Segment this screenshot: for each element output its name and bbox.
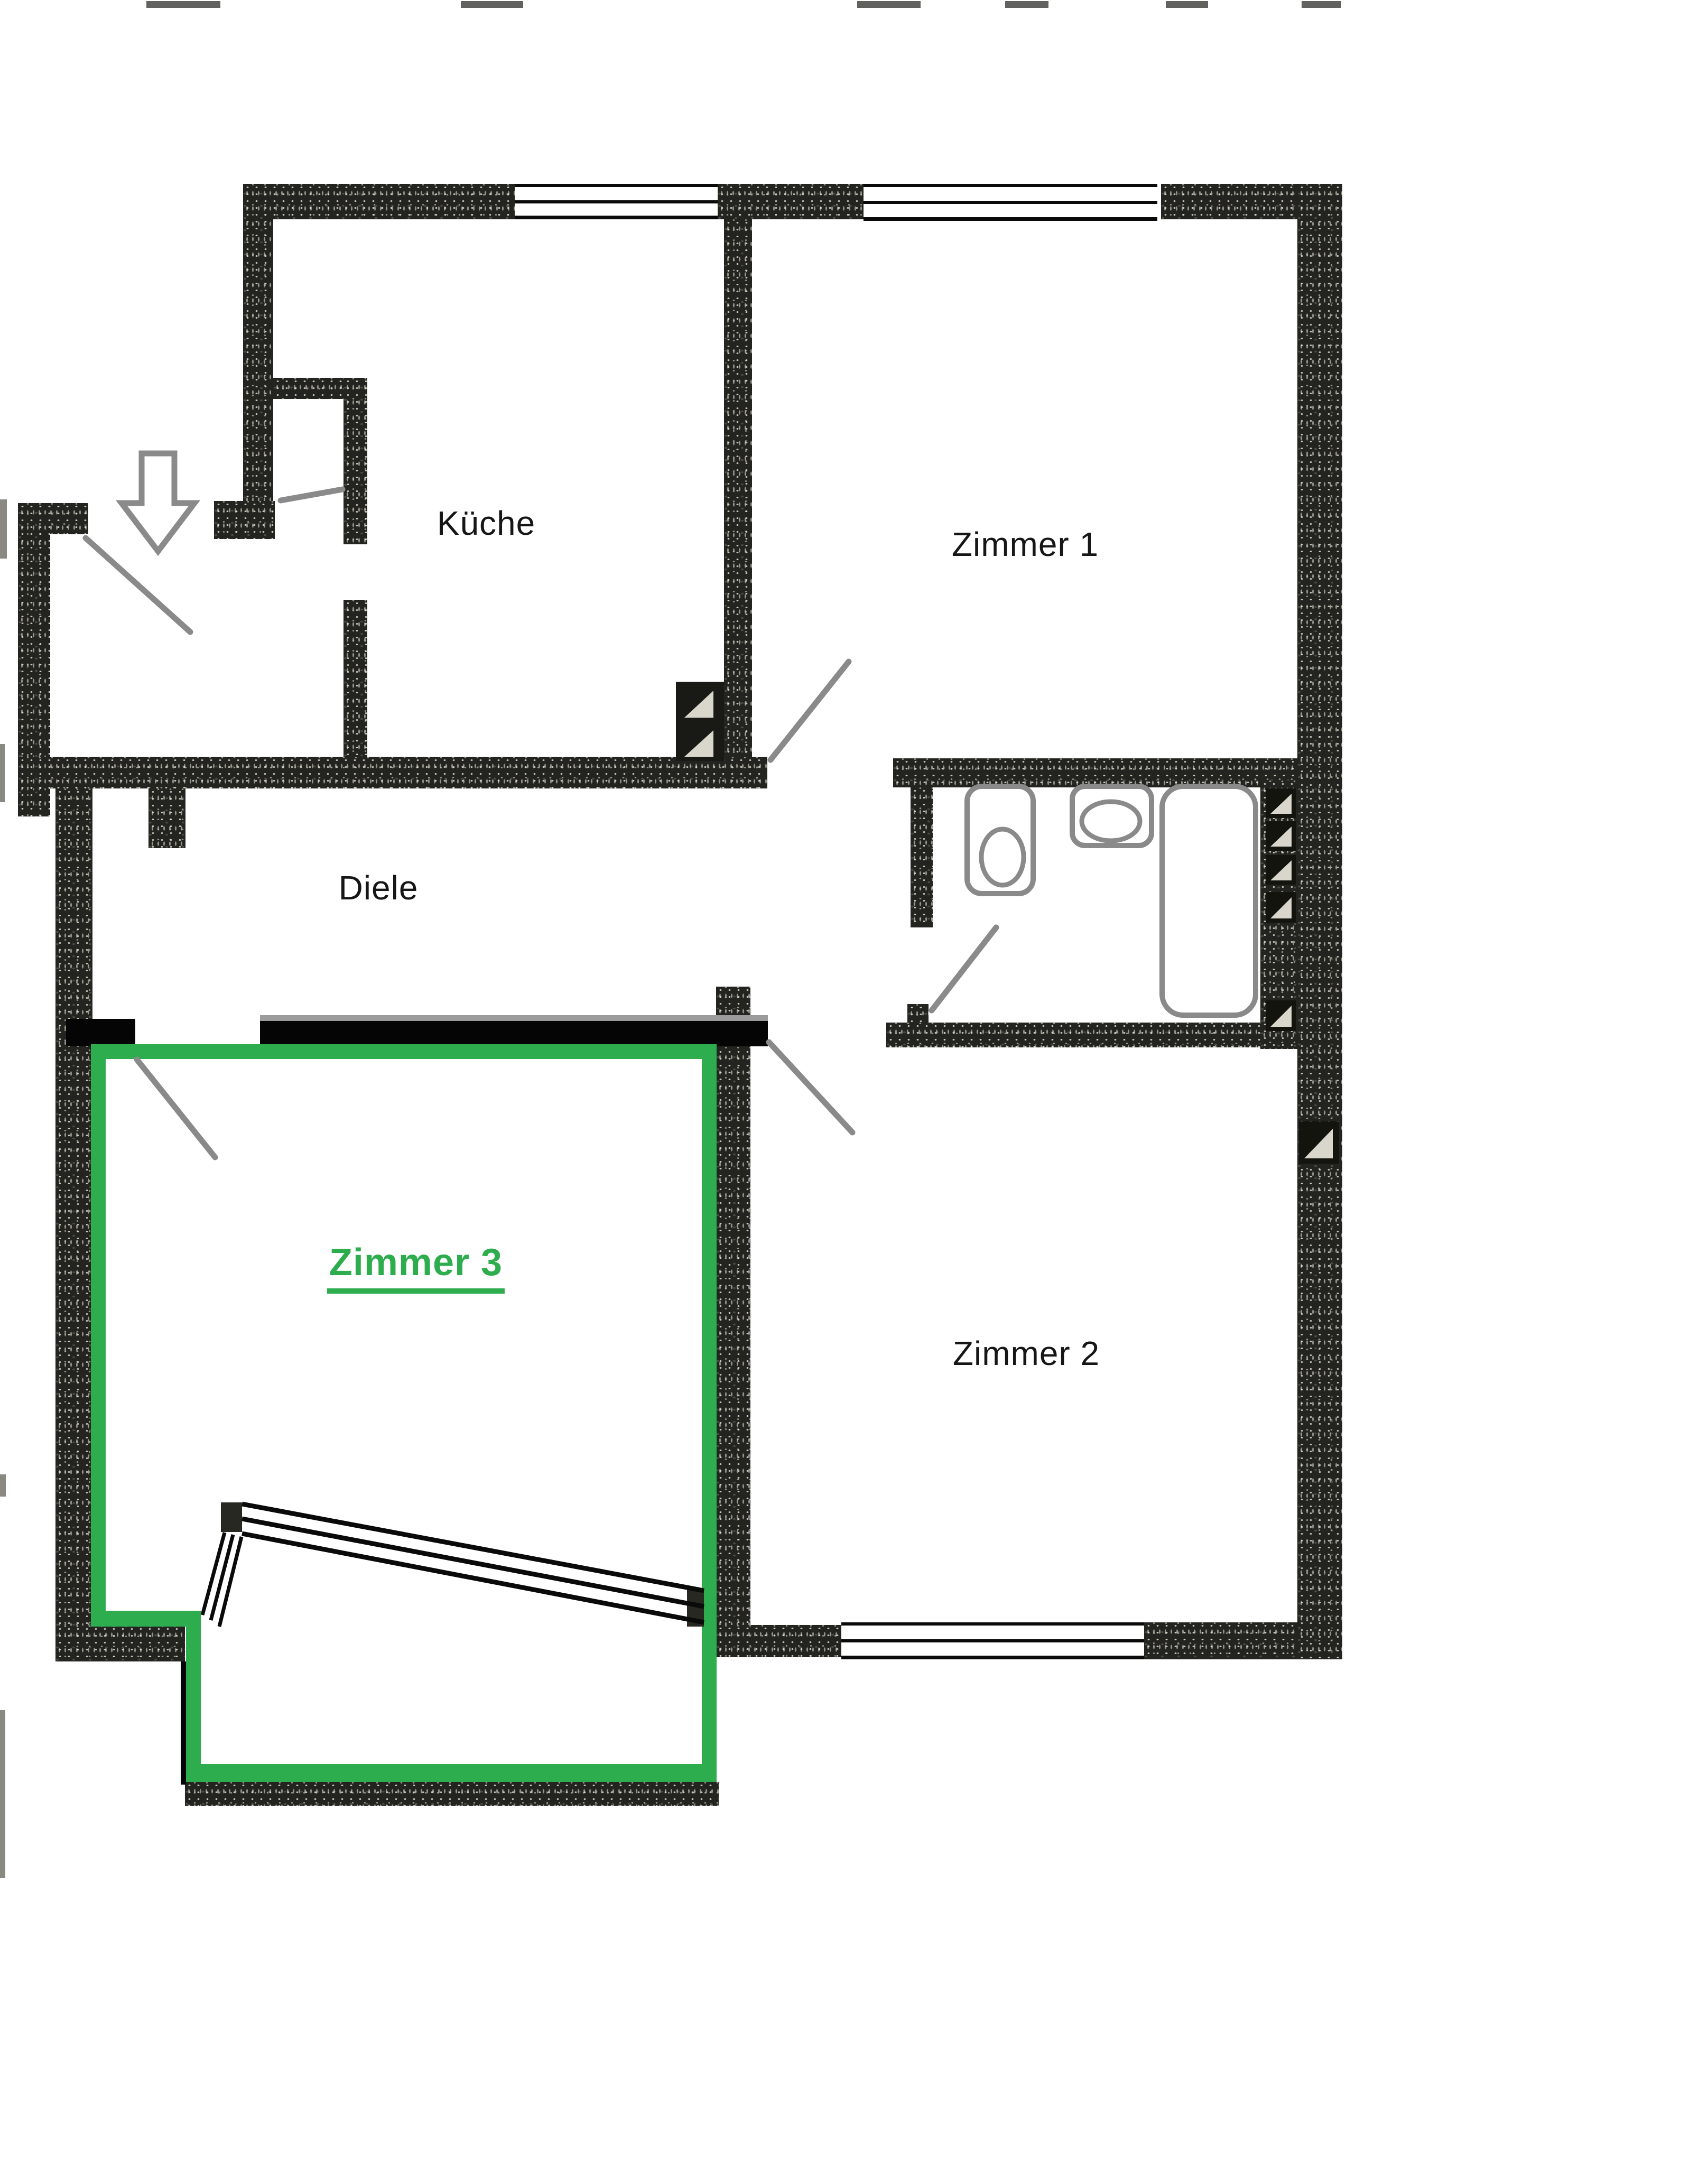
bathtub-icon (1162, 786, 1256, 1015)
toilet-bowl-icon (981, 829, 1024, 885)
scan-artifact (0, 499, 7, 559)
scan-artifact (0, 1710, 5, 1878)
scan-artifact (0, 744, 5, 802)
scan-artifact (461, 1, 523, 8)
floor-plan-page: Küche Zimmer 1 Diele Zimmer 2 Zimmer 3 (0, 0, 1708, 2173)
room-label-diele: Diele (339, 868, 419, 907)
scan-artifact (1166, 1, 1208, 8)
door-swing-kueche (281, 489, 342, 500)
wall-seam-line (260, 1015, 768, 1021)
scan-artifact (0, 1474, 6, 1497)
slanted-window-left-post (221, 1502, 242, 1532)
door-swing-zimmer3 (137, 1060, 215, 1157)
kitchen-shaft (676, 682, 724, 761)
scan-artifact (146, 1, 220, 8)
sink-basin-icon (1082, 802, 1140, 841)
door-swing-zimmer2 (769, 1042, 852, 1132)
scan-artifact (857, 1, 921, 8)
bath-shaft-column (1266, 788, 1296, 1031)
bathroom-fixtures (967, 786, 1256, 1015)
room-label-zimmer2: Zimmer 2 (953, 1334, 1100, 1373)
slanted-window (202, 1502, 704, 1627)
zimmer2-corner-shaft (1299, 1121, 1339, 1164)
annotation-overlay (0, 0, 1708, 2173)
room-label-zimmer3: Zimmer 3 (327, 1241, 505, 1294)
door-swing-bad (932, 927, 996, 1010)
room-label-kueche: Küche (437, 504, 535, 543)
room-label-zimmer1: Zimmer 1 (952, 525, 1099, 564)
slanted-window-line (242, 1519, 704, 1606)
door-swing-zimmer1 (771, 662, 849, 760)
door-swing-entrance (86, 538, 190, 632)
entrance-arrow-icon (122, 453, 194, 551)
scan-artifact (1302, 1, 1341, 8)
scan-artifact (1005, 1, 1048, 8)
